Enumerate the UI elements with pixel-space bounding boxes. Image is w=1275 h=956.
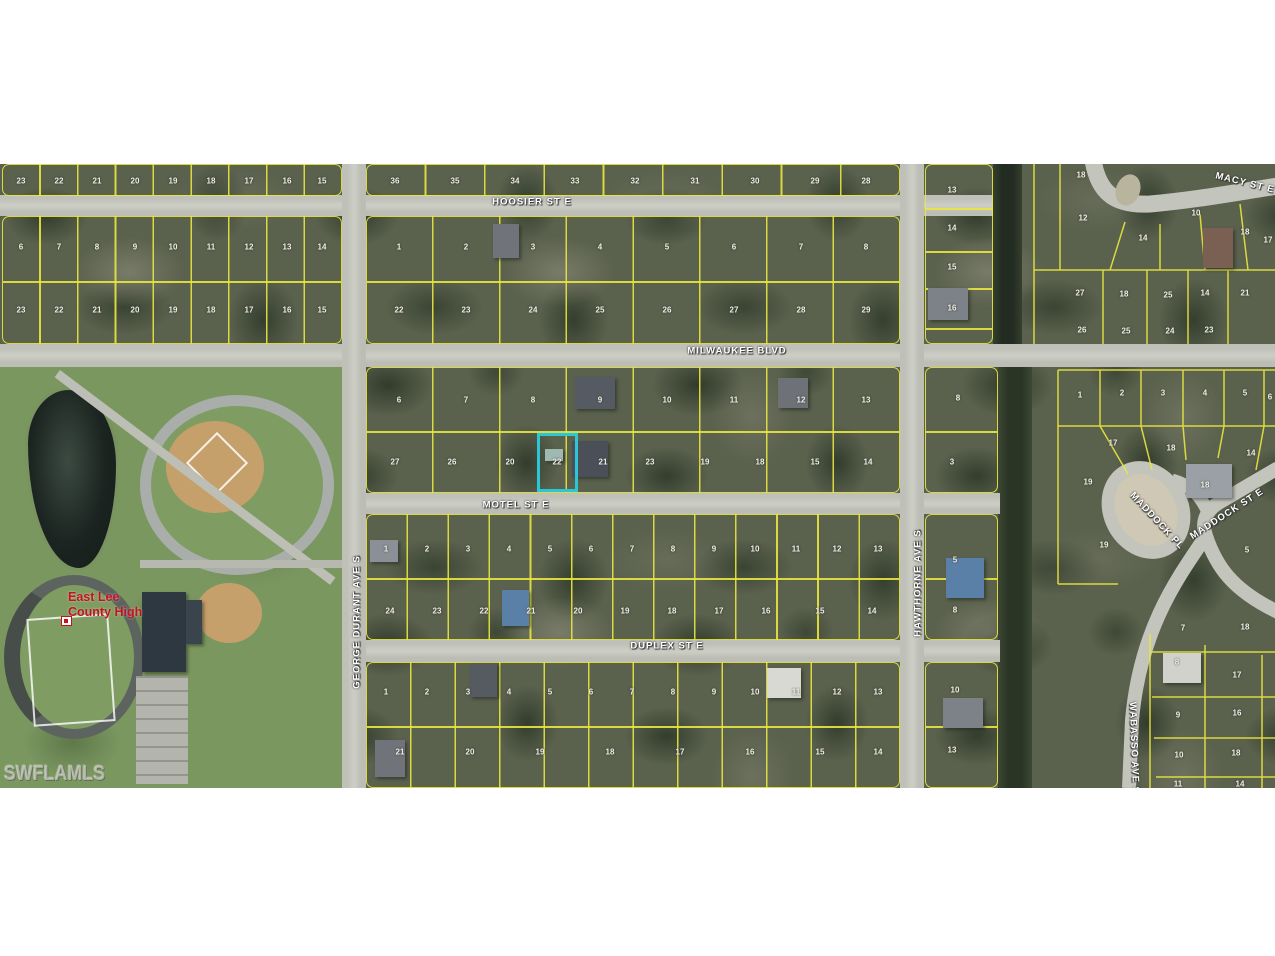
lot-number: 23 (17, 306, 26, 315)
building-roof (375, 740, 405, 777)
building-roof (946, 558, 984, 598)
lot-number: 18 (668, 607, 677, 616)
parcel-block (925, 367, 998, 493)
road-hawthorne-ave-s (900, 164, 924, 788)
lot-number: 17 (245, 177, 254, 186)
lot-number: 3 (466, 688, 470, 697)
lot-number: 27 (730, 306, 739, 315)
lot-number: 21 (1241, 289, 1250, 298)
lot-number: 3 (1161, 389, 1165, 398)
lot-number: 4 (598, 243, 602, 252)
lot-number: 3 (950, 458, 954, 467)
lot-number: 1 (384, 688, 388, 697)
baseball-diamond-south (196, 583, 262, 643)
lot-number: 9 (598, 396, 602, 405)
street-label: MACY ST E (1214, 170, 1275, 195)
lot-number: 8 (956, 394, 960, 403)
lot-number: 5 (665, 243, 669, 252)
highlighted-subject-parcel (537, 433, 578, 492)
lot-number: 6 (1268, 393, 1272, 402)
lot-number: 13 (948, 186, 957, 195)
lot-number: 6 (589, 545, 593, 554)
tree-strip (998, 367, 1032, 788)
parcel-block (366, 514, 900, 640)
lot-number: 19 (701, 458, 710, 467)
lot-number: 17 (1109, 439, 1118, 448)
parcel-block (366, 216, 900, 344)
lot-number: 23 (646, 458, 655, 467)
building-roof (493, 224, 519, 258)
lot-number: 8 (671, 545, 675, 554)
lot-number: 11 (792, 545, 800, 554)
lot-number: 18 (1241, 228, 1250, 237)
lot-number: 21 (527, 607, 536, 616)
lot-number: 31 (691, 177, 700, 186)
lot-number: 2 (425, 545, 429, 554)
lot-number: 5 (548, 545, 552, 554)
lot-number: 17 (245, 306, 254, 315)
lot-number: 7 (630, 545, 634, 554)
lot-number: 18 (1232, 749, 1241, 758)
lot-number: 10 (1175, 751, 1184, 760)
lot-number: 24 (1166, 327, 1175, 336)
lot-number: 25 (1122, 327, 1131, 336)
lot-number: 23 (462, 306, 471, 315)
lot-number: 18 (207, 177, 216, 186)
parcel-block (366, 662, 900, 788)
lot-number: 24 (386, 607, 395, 616)
lot-number: 16 (1233, 709, 1242, 718)
lot-number: 15 (816, 607, 825, 616)
street-label: HOOSIER ST E (492, 197, 572, 208)
lot-number: 21 (599, 458, 608, 467)
lot-number: 10 (169, 243, 178, 252)
lot-number: 7 (1181, 624, 1185, 633)
lot-number: 28 (862, 177, 871, 186)
lot-number: 8 (671, 688, 675, 697)
lot-number: 3 (531, 243, 535, 252)
lot-number: 32 (631, 177, 640, 186)
lot-number: 16 (283, 177, 292, 186)
lot-number: 14 (948, 224, 957, 233)
lot-number: 24 (529, 306, 538, 315)
lot-number: 14 (1247, 449, 1256, 458)
lot-number: 21 (396, 748, 405, 757)
lot-number: 30 (751, 177, 760, 186)
lot-number: 18 (1241, 623, 1250, 632)
lot-number: 26 (448, 458, 457, 467)
lot-number: 13 (283, 243, 292, 252)
lot-number: 18 (207, 306, 216, 315)
lot-number: 8 (531, 396, 535, 405)
lot-number: 1 (397, 243, 401, 252)
street-label: GEORGE DURANT AVE S (352, 555, 363, 689)
lot-number: 34 (511, 177, 520, 186)
lot-number: 29 (862, 306, 871, 315)
lot-number: 6 (19, 243, 23, 252)
street-label: HAWTHORNE AVE S (913, 529, 924, 636)
lot-number: 36 (391, 177, 400, 186)
parcel-block (2, 216, 342, 344)
lot-number: 1 (384, 545, 388, 554)
lot-number: 28 (797, 306, 806, 315)
lot-number: 26 (663, 306, 672, 315)
lot-number: 8 (864, 243, 868, 252)
lot-number: 11 (730, 396, 738, 405)
lot-number: 13 (948, 746, 957, 755)
lot-number: 15 (318, 306, 327, 315)
building-roof (943, 698, 983, 728)
lot-number: 13 (862, 396, 871, 405)
lot-number: 15 (816, 748, 825, 757)
lot-number: 12 (245, 243, 254, 252)
school-label-line2: County High (68, 605, 142, 620)
lot-number: 13 (874, 688, 883, 697)
lot-number: 5 (1243, 389, 1247, 398)
parcel-row-line (926, 328, 992, 330)
school-flag-icon (61, 616, 72, 626)
aerial-map: East Lee County High SWFLAMLS 2322212019… (0, 164, 1275, 788)
lot-number: 10 (663, 396, 672, 405)
lot-number: 5 (548, 688, 552, 697)
parcel-row-line (926, 208, 992, 210)
lot-number: 2 (464, 243, 468, 252)
lot-number: 18 (606, 748, 615, 757)
parcel-row-line (926, 251, 992, 253)
lot-number: 16 (948, 304, 957, 313)
building-roof (470, 663, 497, 697)
lot-number: 16 (746, 748, 755, 757)
lot-number: 20 (506, 458, 515, 467)
lot-number: 17 (676, 748, 685, 757)
lot-number: 18 (1120, 290, 1129, 299)
lot-number: 14 (864, 458, 873, 467)
lot-number: 17 (1264, 236, 1273, 245)
lot-number: 23 (1205, 326, 1214, 335)
lot-number: 23 (17, 177, 26, 186)
lot-number: 17 (715, 607, 724, 616)
lot-number: 4 (507, 545, 511, 554)
lot-number: 18 (1077, 171, 1086, 180)
lot-number: 5 (953, 556, 957, 565)
road-milwaukee-blvd (0, 344, 1275, 367)
lot-number: 33 (571, 177, 580, 186)
lot-number: 7 (57, 243, 61, 252)
lot-number: 12 (833, 545, 842, 554)
school-label-line1: East Lee (68, 590, 142, 605)
lot-number: 5 (1245, 546, 1249, 555)
lot-number: 21 (93, 177, 102, 186)
lot-number: 26 (1078, 326, 1087, 335)
lot-number: 16 (762, 607, 771, 616)
lot-number: 9 (133, 243, 137, 252)
lot-number: 3 (466, 545, 470, 554)
lot-number: 22 (55, 306, 64, 315)
lot-number: 11 (1174, 780, 1182, 789)
building-roof (186, 600, 202, 644)
lot-number: 12 (833, 688, 842, 697)
lot-number: 6 (732, 243, 736, 252)
lot-number: 19 (1084, 478, 1093, 487)
lot-number: 35 (451, 177, 460, 186)
lot-number: 16 (283, 306, 292, 315)
swflamls-watermark: SWFLAMLS (4, 762, 105, 786)
lot-number: 9 (712, 545, 716, 554)
lot-number: 19 (621, 607, 630, 616)
street-label: WABASSO AVE S (1127, 702, 1141, 788)
lot-number: 25 (596, 306, 605, 315)
street-label: MOTEL ST E (483, 500, 550, 511)
lot-number: 15 (318, 177, 327, 186)
lot-number: 14 (874, 748, 883, 757)
lot-number: 15 (811, 458, 820, 467)
lot-number: 22 (395, 306, 404, 315)
building-roof (575, 377, 615, 409)
lot-number: 19 (169, 306, 178, 315)
lot-number: 6 (397, 396, 401, 405)
right-section-parcel-lines (1034, 164, 1275, 788)
lot-number: 1 (1078, 391, 1082, 400)
soccer-field-lines (26, 613, 115, 726)
lot-number: 22 (55, 177, 64, 186)
drainage-canal (993, 164, 1022, 344)
lot-number: 14 (1236, 780, 1245, 789)
lot-number: 15 (948, 263, 957, 272)
parcel-row-line (367, 578, 899, 580)
parking-lot (136, 676, 188, 784)
lot-number: 20 (466, 748, 475, 757)
parcel-block (366, 367, 900, 493)
lot-number: 11 (207, 243, 215, 252)
lot-number: 19 (169, 177, 178, 186)
lot-number: 7 (799, 243, 803, 252)
street-label: MADDOCK PL (1128, 490, 1187, 552)
parcel-row-line (367, 726, 899, 728)
lot-number: 25 (1164, 291, 1173, 300)
lot-number: 20 (131, 306, 140, 315)
lot-number: 10 (1192, 209, 1201, 218)
lot-number: 20 (574, 607, 583, 616)
lot-number: 2 (1120, 389, 1124, 398)
lot-number: 14 (318, 243, 327, 252)
lot-number: 10 (751, 688, 760, 697)
road-george-durant-ave-s (342, 164, 366, 788)
lot-number: 27 (391, 458, 400, 467)
lot-number: 14 (1139, 234, 1148, 243)
parcel-row-line (926, 431, 997, 433)
lot-number: 8 (953, 606, 957, 615)
lot-number: 4 (507, 688, 511, 697)
lot-number: 19 (1100, 541, 1109, 550)
lot-number: 22 (480, 607, 489, 616)
lot-number: 10 (751, 545, 760, 554)
lot-number: 8 (95, 243, 99, 252)
lot-number: 7 (464, 396, 468, 405)
lot-number: 20 (131, 177, 140, 186)
lot-number: 18 (1167, 444, 1176, 453)
parcel-row-line (367, 281, 899, 283)
lot-number: 18 (1201, 481, 1210, 490)
street-label: MILWAUKEE BLVD (687, 346, 786, 357)
lot-number: 4 (1203, 389, 1207, 398)
lot-number: 18 (756, 458, 765, 467)
building-roof (502, 590, 529, 626)
lot-number: 10 (951, 686, 960, 695)
lot-number: 14 (868, 607, 877, 616)
lot-number: 27 (1076, 289, 1085, 298)
parcel-row-line (367, 431, 899, 433)
street-label: DUPLEX ST E (630, 641, 703, 652)
lot-number: 21 (93, 306, 102, 315)
lot-number: 19 (536, 748, 545, 757)
lot-number: 29 (811, 177, 820, 186)
lot-number: 12 (1079, 214, 1088, 223)
campus-path (140, 560, 343, 568)
lot-number: 13 (874, 545, 883, 554)
building-roof (1203, 228, 1233, 268)
lot-number: 11 (792, 688, 800, 697)
lot-number: 12 (797, 396, 806, 405)
lot-number: 2 (425, 688, 429, 697)
building-roof (142, 592, 186, 672)
lot-number: 9 (712, 688, 716, 697)
lot-number: 8 (1175, 658, 1179, 667)
mls-aerial-map-photo: East Lee County High SWFLAMLS 2322212019… (0, 0, 1275, 956)
parcel-row-line (3, 281, 341, 283)
lot-number: 6 (589, 688, 593, 697)
school-label: East Lee County High (68, 590, 142, 620)
lot-number: 14 (1201, 289, 1210, 298)
building-roof (1163, 653, 1201, 683)
lot-number: 17 (1233, 671, 1242, 680)
lot-number: 7 (630, 688, 634, 697)
lot-number: 9 (1176, 711, 1180, 720)
lot-number: 23 (433, 607, 442, 616)
macy-culdesac-island (1111, 171, 1144, 209)
